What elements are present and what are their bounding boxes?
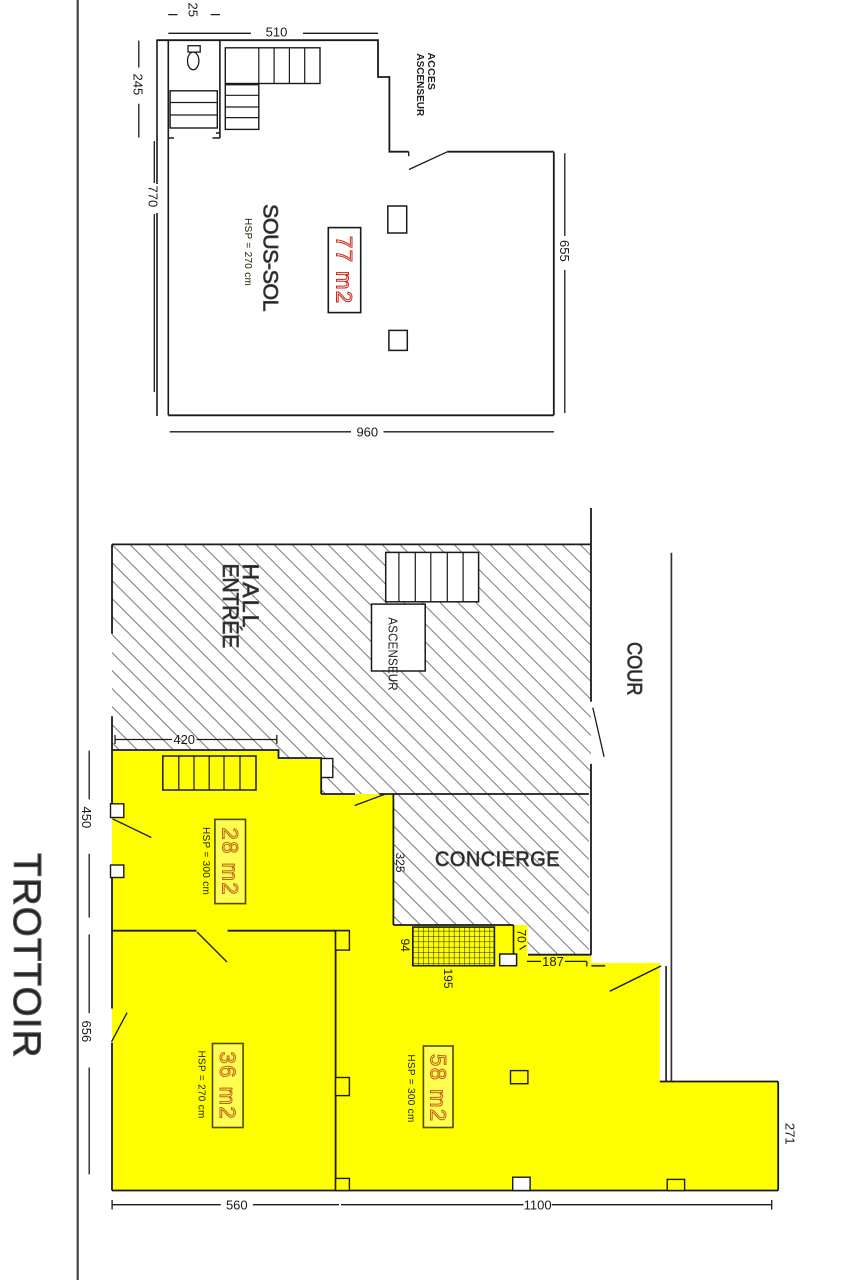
svg-text:245: 245 (131, 74, 146, 96)
svg-text:187: 187 (542, 954, 564, 969)
svg-text:195: 195 (441, 969, 455, 989)
svg-text:325: 325 (393, 853, 407, 873)
svg-text:25: 25 (185, 3, 200, 17)
svg-text:420: 420 (173, 732, 195, 747)
svg-text:ACCES: ACCES (425, 53, 437, 91)
svg-text:HSP = 270 cm: HSP = 270 cm (242, 218, 253, 286)
svg-text:CONCIERGE: CONCIERGE (435, 847, 560, 871)
svg-text:28 m2: 28 m2 (217, 828, 242, 897)
svg-text:SOUS-SOL: SOUS-SOL (258, 204, 282, 312)
svg-text:ASCENSEUR: ASCENSEUR (414, 53, 425, 117)
svg-text:770: 770 (145, 186, 160, 208)
svg-text:TROTTOIR: TROTTOIR (5, 853, 48, 1059)
svg-text:271: 271 (783, 1123, 798, 1145)
svg-text:510: 510 (266, 25, 288, 40)
svg-text:36 m2: 36 m2 (215, 1052, 240, 1121)
svg-text:HSP = 300 cm: HSP = 300 cm (200, 827, 211, 895)
svg-text:ENTRÉE: ENTRÉE (218, 564, 243, 649)
svg-text:ASCENSEUR: ASCENSEUR (385, 617, 399, 691)
svg-text:450: 450 (79, 807, 94, 829)
svg-text:70: 70 (514, 930, 528, 944)
svg-text:COUR: COUR (622, 642, 645, 696)
svg-text:58 m2: 58 m2 (425, 1054, 450, 1123)
svg-text:560: 560 (226, 1197, 248, 1212)
svg-text:960: 960 (356, 424, 378, 439)
svg-text:94: 94 (398, 939, 412, 953)
svg-text:656: 656 (79, 1021, 94, 1043)
svg-text:77 m2: 77 m2 (332, 236, 357, 305)
svg-text:HSP = 270 cm: HSP = 270 cm (195, 1051, 206, 1119)
svg-text:655: 655 (557, 240, 572, 262)
svg-text:1100: 1100 (524, 1197, 552, 1212)
svg-text:HSP = 300 cm: HSP = 300 cm (405, 1054, 416, 1122)
